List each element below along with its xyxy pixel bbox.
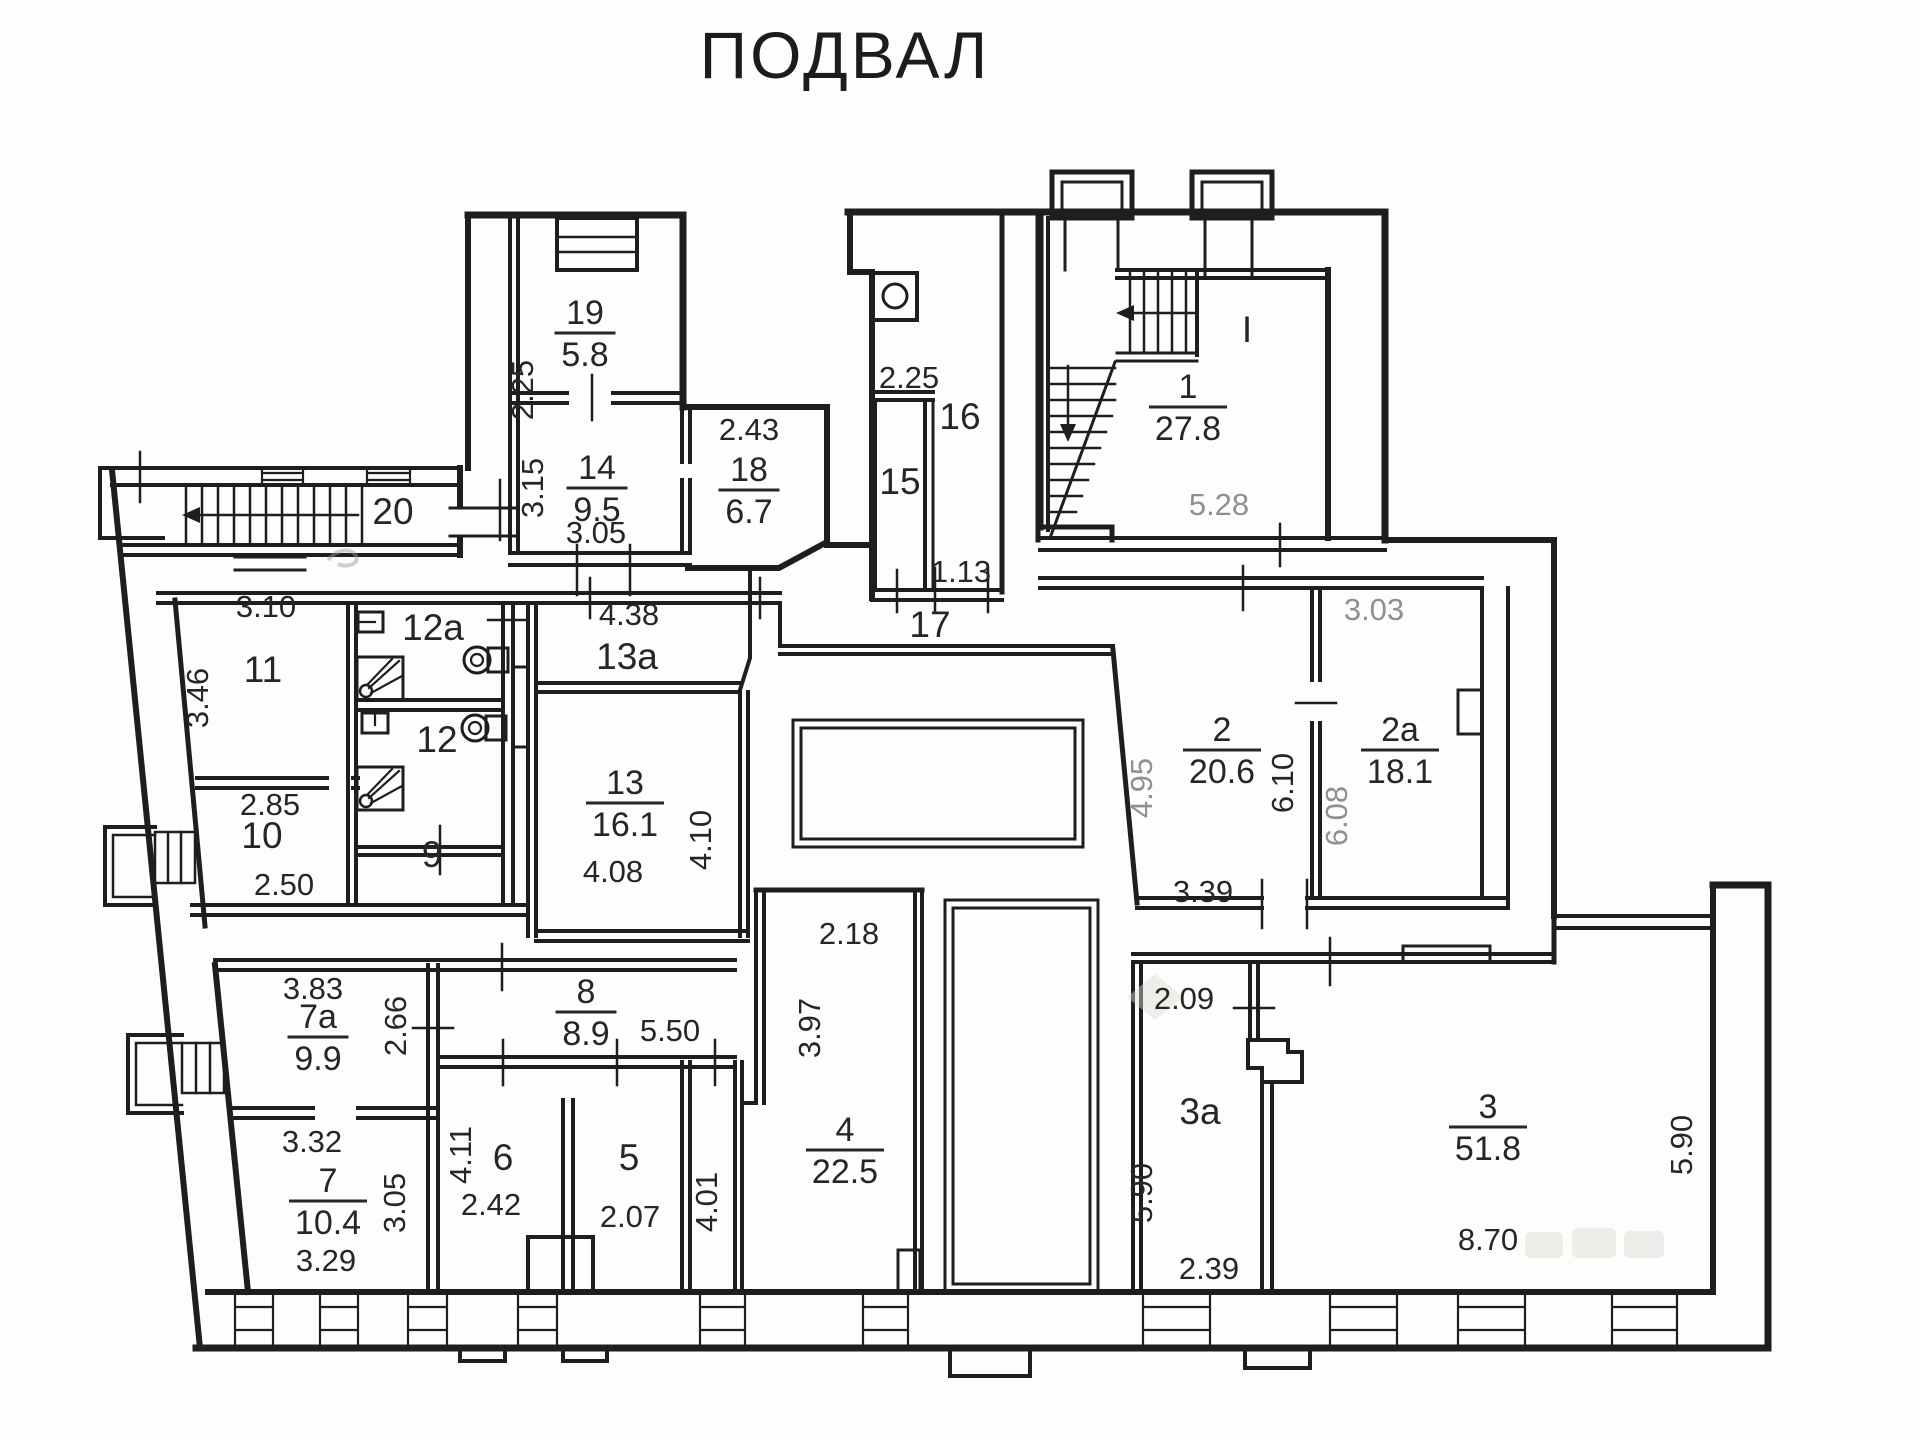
floor-plan-drawing: ПОДВАЛ xyxy=(0,0,1920,1440)
staircase-top-left xyxy=(182,488,362,542)
dimension-label: 2.25 xyxy=(505,360,540,420)
svg-text:13: 13 xyxy=(606,764,644,802)
boiler-icon xyxy=(883,284,907,308)
dimension-label: 2.07 xyxy=(600,1199,660,1234)
stair-arrow xyxy=(1116,305,1134,321)
svg-text:3: 3 xyxy=(1479,1088,1498,1126)
room-label-19: 195.8 xyxy=(555,294,616,374)
room-mark-15: 15 xyxy=(879,461,920,502)
dimension-label: 2.85 xyxy=(240,787,300,822)
dimension-label: 3.03 xyxy=(1344,592,1404,627)
staircase-room1-lower xyxy=(1048,362,1115,538)
svg-text:2: 2 xyxy=(1213,711,1232,749)
dimension-label: 2.39 xyxy=(1179,1251,1239,1286)
room-label-2: 220.6 xyxy=(1183,711,1261,791)
dimension-label: 4.01 xyxy=(689,1172,724,1232)
svg-text:8: 8 xyxy=(577,973,596,1011)
dimension-label: 3.15 xyxy=(515,458,550,518)
chimney-block xyxy=(528,1237,593,1292)
room-label-7a: 7a9.9 xyxy=(288,998,349,1078)
dimension-label: 3.32 xyxy=(282,1124,342,1159)
room-label-1: 127.8 xyxy=(1149,368,1227,448)
labels-layer: 195.8149.5186.7127.81316.1220.62a18.188.… xyxy=(180,294,1699,1286)
room-label-8: 88.9 xyxy=(556,973,617,1053)
dimension-label: 3.46 xyxy=(180,668,215,728)
svg-text:7: 7 xyxy=(319,1162,338,1200)
dimension-label: 3.05 xyxy=(566,515,626,550)
staircase-room1-upper xyxy=(1116,273,1197,353)
dimension-label: 5.90 xyxy=(1664,1115,1699,1175)
room-label-18: 186.7 xyxy=(719,451,780,531)
svg-text:8.9: 8.9 xyxy=(562,1015,609,1053)
svg-text:19: 19 xyxy=(566,294,604,332)
stair-arrow xyxy=(182,507,200,523)
room-mark-20: 20 xyxy=(372,491,413,532)
dimension-label: 4.10 xyxy=(683,810,718,870)
dimension-label: 2.66 xyxy=(378,996,413,1056)
svg-text:4: 4 xyxy=(836,1111,855,1149)
dimension-label: 3.05 xyxy=(377,1173,412,1233)
room-mark-I: I xyxy=(1242,309,1252,350)
room-mark-6: 6 xyxy=(493,1137,514,1178)
dimension-label: 5.90 xyxy=(1124,1163,1159,1223)
dimension-label: 2.50 xyxy=(254,867,314,902)
room-mark-11: 11 xyxy=(244,649,282,690)
svg-text:18.1: 18.1 xyxy=(1367,753,1433,791)
dimension-label: 5.50 xyxy=(640,1013,700,1048)
dimension-label: 3.83 xyxy=(283,971,343,1006)
svg-text:20.6: 20.6 xyxy=(1189,753,1255,791)
svg-text:18: 18 xyxy=(730,451,768,489)
room-mark-13a: 13a xyxy=(596,636,658,677)
room-mark-16: 16 xyxy=(939,396,980,437)
column xyxy=(1248,1040,1302,1082)
floor-plan-page: ПОДВАЛ xyxy=(0,0,1920,1440)
svg-text:16.1: 16.1 xyxy=(592,806,658,844)
room-mark-12a: 12a xyxy=(402,607,464,648)
room-label-13: 1316.1 xyxy=(586,764,664,844)
dimension-label: 4.08 xyxy=(583,854,643,889)
svg-text:1: 1 xyxy=(1179,368,1198,406)
dimension-label: 3.39 xyxy=(1173,874,1233,909)
room-mark-9: 9 xyxy=(422,834,443,875)
page-title: ПОДВАЛ xyxy=(700,18,991,92)
svg-text:10.4: 10.4 xyxy=(295,1204,361,1242)
dimension-label: 3.97 xyxy=(792,998,827,1058)
dimension-label: 6.10 xyxy=(1265,753,1300,813)
room-mark-12: 12 xyxy=(416,719,457,760)
room-label-7: 710.4 xyxy=(289,1162,367,1242)
dimension-label: 6.08 xyxy=(1319,786,1354,846)
dimension-label: 5.28 xyxy=(1189,487,1249,522)
dimension-label: 3.10 xyxy=(236,589,296,624)
boiler-box xyxy=(873,273,917,320)
dimension-label: 2.43 xyxy=(719,412,779,447)
svg-text:2a: 2a xyxy=(1381,711,1419,749)
svg-text:14: 14 xyxy=(578,449,616,487)
svg-text:22.5: 22.5 xyxy=(812,1153,878,1191)
room-label-2a: 2a18.1 xyxy=(1361,711,1439,791)
room-mark-17: 17 xyxy=(909,604,950,645)
dimension-label: 1.13 xyxy=(931,554,991,589)
dimension-label: 2.42 xyxy=(461,1187,521,1222)
svg-text:51.8: 51.8 xyxy=(1455,1130,1521,1168)
courtyard-shafts xyxy=(793,720,1098,1292)
svg-text:27.8: 27.8 xyxy=(1155,410,1221,448)
dimension-label: 4.95 xyxy=(1124,758,1159,818)
room-mark-3a: 3a xyxy=(1179,1091,1221,1132)
dimension-label: 3.29 xyxy=(296,1243,356,1278)
room-mark-5: 5 xyxy=(619,1137,640,1178)
dimension-label: 4.11 xyxy=(443,1126,478,1184)
dimension-label: 8.70 xyxy=(1458,1222,1518,1257)
room-label-4: 422.5 xyxy=(806,1111,884,1191)
dimension-label: 2.25 xyxy=(879,360,939,395)
svg-text:9.9: 9.9 xyxy=(294,1040,341,1078)
room-label-3: 351.8 xyxy=(1449,1088,1527,1168)
entry-porch xyxy=(100,468,163,538)
svg-text:5.8: 5.8 xyxy=(561,336,608,374)
dimension-label: 2.09 xyxy=(1154,981,1214,1016)
vent-shaft xyxy=(557,218,637,270)
dimension-label: 4.38 xyxy=(599,597,659,632)
dimension-label: 2.18 xyxy=(819,916,879,951)
svg-text:6.7: 6.7 xyxy=(725,493,772,531)
